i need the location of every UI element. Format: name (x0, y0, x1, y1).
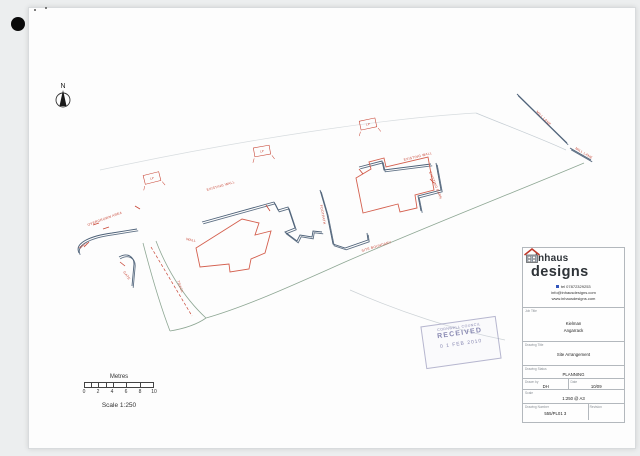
title-block-logo-cell: inhaus designs tel 07872329253 info@inha… (523, 248, 624, 308)
scale-tick: 0 (83, 389, 86, 395)
job-title-cell: Job Title Kielman Angarrack (523, 308, 624, 342)
scale-tick: 2 (97, 389, 100, 395)
scale-tick: 8 (139, 389, 142, 395)
title-block: inhaus designs tel 07872329253 info@inha… (522, 247, 625, 423)
drawing-status-field-label: Drawing Status (525, 367, 547, 371)
drawing-number-cell: Drawing Number 555/PL01 3 Revision (523, 404, 624, 420)
building-west-outline (196, 219, 271, 272)
marker-label: LP (366, 122, 371, 127)
north-label: N (60, 83, 65, 90)
scale-segment (141, 383, 153, 387)
annotation-label: OVERGROWN AREA (87, 211, 123, 227)
drawn-by-cell: Drawn by DH (523, 379, 569, 389)
marker-leader (358, 128, 380, 136)
annotation-label: WALL (78, 241, 89, 250)
scale-segment (92, 383, 99, 387)
scale-segment (107, 383, 114, 387)
job-title-field-label: Job Title (525, 309, 537, 313)
annotation-label: SITE BOUNDARY (361, 240, 392, 253)
scale-segment (99, 383, 106, 387)
drawing-number-subcell: Drawing Number 555/PL01 3 (523, 404, 589, 420)
scale-bar-segments (84, 382, 154, 388)
job-title-line1: Kielman (523, 321, 624, 326)
inhaus-house-icon (523, 248, 541, 263)
scale-field-label: Scale (525, 391, 533, 395)
scale-ratio-label: Scale 1:250 (84, 402, 154, 409)
revision-field-label: Revision (590, 405, 602, 409)
drawing-number-value: 555/PL01 3 (523, 411, 588, 416)
north-arrow: N (56, 83, 70, 107)
scale-tick: 4 (111, 389, 114, 395)
scale-segment (114, 383, 127, 387)
contact-website: www.inhausdesigns.com (523, 296, 624, 302)
faint-contour-line (476, 113, 566, 150)
track-centreline (151, 247, 192, 316)
scale-cell: Scale 1:250 @ A3 (523, 390, 624, 404)
marker-label: LP (150, 176, 155, 181)
logo-wordmark-bottom: designs (523, 265, 624, 280)
marker-leader (143, 181, 165, 190)
scale-value: 1:250 @ A3 (523, 396, 624, 401)
revision-subcell: Revision (588, 404, 624, 420)
drawing-title-cell: Drawing Title Site Arrangement (523, 342, 624, 366)
date-cell: Date 10/09 (568, 379, 624, 389)
marker-label: LP (260, 149, 265, 154)
drawing-title-field-label: Drawing Title (525, 343, 543, 347)
contact-details: tel 07872329253 info@inhausdesigns.com w… (523, 284, 624, 302)
scale-tick: 6 (125, 389, 128, 395)
bullet-icon (556, 285, 559, 288)
drawing-title-value: Site Arrangement (523, 352, 624, 357)
marker-leader (252, 155, 274, 163)
boundary-walls (78, 94, 591, 286)
scale-tick: 10 (151, 389, 157, 395)
annotation-label: WALL (186, 237, 197, 243)
job-title-line2: Angarrack (523, 328, 624, 333)
building-outlines (196, 157, 434, 272)
annotation-label: GATE (122, 270, 131, 281)
annotation-label: EXISTING WALL (206, 180, 235, 192)
scale-bar: Metres 0 2 4 6 8 10 Scale 1:250 (84, 374, 154, 409)
drawn-by-value: DH (523, 384, 568, 389)
date-value: 10/09 (568, 384, 624, 389)
scale-bar-units-label: Metres (84, 374, 154, 380)
north-arrow-needle (60, 90, 67, 106)
survey-tick-marks (84, 169, 434, 266)
drawing-status-value: PLANNING (523, 372, 624, 377)
faint-contour-line (100, 113, 476, 170)
drawing-number-field-label: Drawing Number (525, 405, 549, 409)
annotation-label: EXISTING WALL (403, 151, 432, 162)
scale-segment (85, 383, 92, 387)
boxed-marker-labels: LP LP LP (140, 117, 381, 190)
annotation-label: MILL LANE (535, 110, 552, 127)
drawing-status-cell: Drawing Status PLANNING (523, 366, 624, 379)
scale-bar-ticks: 0 2 4 6 8 10 (84, 389, 154, 397)
scale-segment (127, 383, 140, 387)
boundary-walls-inner-line (79, 96, 592, 288)
drawn-by-date-cell: Drawn by DH Date 10/09 (523, 379, 624, 390)
